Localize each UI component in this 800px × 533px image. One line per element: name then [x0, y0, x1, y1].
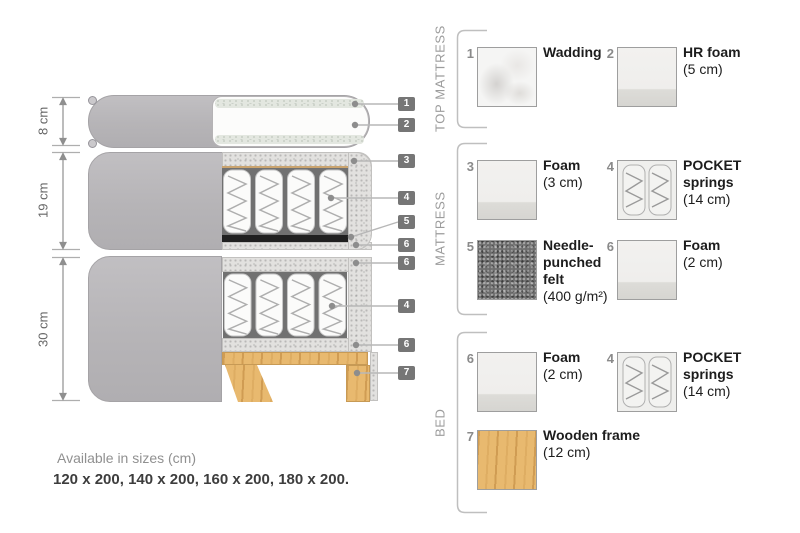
pocket-springs-illustration	[618, 353, 676, 411]
callout-tag-2: 2	[398, 118, 415, 132]
callout-tag-4: 4	[398, 191, 415, 205]
section-label-mattress: MATTRESS	[431, 144, 449, 314]
legend-item-name: POCKET springs	[683, 349, 741, 382]
legend-item-name: Foam	[543, 157, 580, 173]
legend-item-number: 2	[599, 46, 614, 61]
pocket-springs-swatch	[617, 160, 677, 220]
legend-item-size: (400 g/m²)	[543, 288, 608, 304]
foam-texture-swatch	[477, 352, 537, 412]
legend-item-size: (2 cm)	[683, 254, 723, 270]
wadding-texture-swatch	[477, 47, 537, 107]
foam-texture-swatch	[617, 240, 677, 300]
legend-item-number: 3	[459, 159, 474, 174]
callout-tag-5: 5	[398, 215, 415, 229]
callout-tag-7: 7	[398, 366, 415, 380]
callout-tag-6b: 6	[398, 256, 415, 270]
legend-item-name: Foam	[543, 349, 580, 365]
section-label-bed: BED	[431, 333, 449, 512]
legend-item-label: HR foam (5 cm)	[683, 44, 773, 78]
legend-item-label: POCKET springs (14 cm)	[683, 349, 763, 400]
callout-leader-lines	[331, 104, 398, 373]
foam-texture-swatch	[477, 160, 537, 220]
legend-item-size: (14 cm)	[683, 191, 730, 207]
legend-item-label: Foam (2 cm)	[683, 237, 773, 271]
callout-tag-6c: 6	[398, 338, 415, 352]
legend-item-number: 4	[599, 159, 614, 174]
section-label-top-mattress: TOP MATTRESS	[431, 30, 449, 128]
available-sizes-values: 120 x 200, 140 x 200, 160 x 200, 180 x 2…	[53, 471, 349, 488]
dimension-label-19cm: 19 cm	[34, 175, 52, 225]
callout-tag-6: 6	[398, 238, 415, 252]
pocket-springs-illustration	[618, 161, 676, 219]
legend-item-label: Wooden frame (12 cm)	[543, 427, 678, 461]
callout-tag-3: 3	[398, 154, 415, 168]
callout-tag-4b: 4	[398, 299, 415, 313]
legend-item-number: 6	[599, 239, 614, 254]
callout-tag-1: 1	[398, 97, 415, 111]
legend-item-name: HR foam	[683, 44, 741, 60]
legend-item-name: Wooden frame	[543, 427, 640, 443]
available-sizes-title: Available in sizes (cm)	[57, 450, 196, 466]
legend-item-size: (5 cm)	[683, 61, 723, 77]
legend-item-number: 4	[599, 351, 614, 366]
bed-construction-infographic: 8 cm 19 cm 30 cm 1 2 3 4 5 6 6 4 6 7 TOP…	[0, 0, 800, 533]
legend-item-size: (3 cm)	[543, 174, 583, 190]
felt-texture-swatch	[477, 240, 537, 300]
legend-item-size: (2 cm)	[543, 366, 583, 382]
foam-texture-swatch	[617, 47, 677, 107]
legend-item-number: 1	[459, 46, 474, 61]
wood-texture-swatch	[477, 430, 537, 490]
legend-item-size: (12 cm)	[543, 444, 590, 460]
legend-item-label: POCKET springs (14 cm)	[683, 157, 763, 208]
dimension-label-30cm: 30 cm	[34, 304, 52, 354]
legend-item-number: 7	[459, 429, 474, 444]
legend-item-number: 6	[459, 351, 474, 366]
legend-item-size: (14 cm)	[683, 383, 730, 399]
dimension-ticks	[52, 98, 80, 401]
legend-item-name: Needle-punched felt	[543, 237, 601, 287]
legend-item-name: Foam	[683, 237, 720, 253]
legend-item-name: POCKET springs	[683, 157, 741, 190]
legend-item-name: Wadding	[543, 44, 602, 60]
dimension-label-8cm: 8 cm	[34, 99, 52, 143]
callout-leader-dots	[328, 101, 360, 376]
legend-item-number: 5	[459, 239, 474, 254]
pocket-springs-swatch	[617, 352, 677, 412]
